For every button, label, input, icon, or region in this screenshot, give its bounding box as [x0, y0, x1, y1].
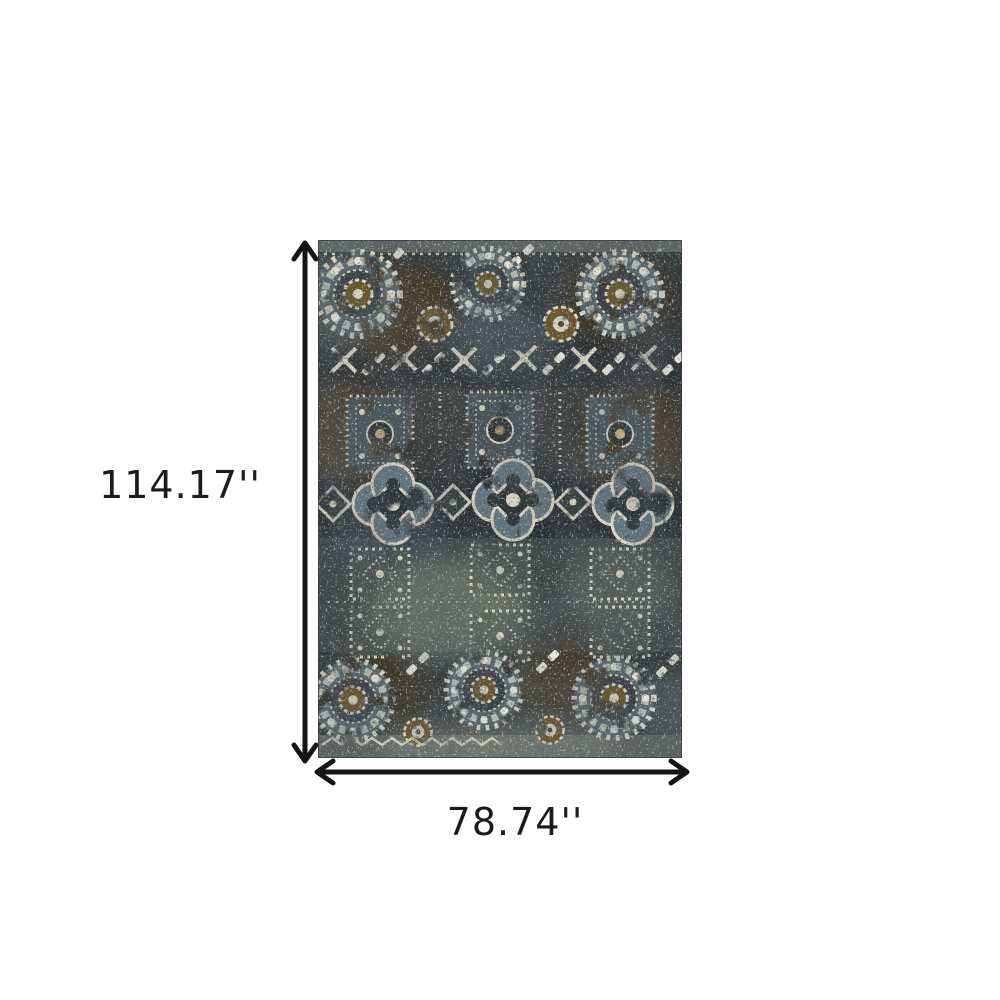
- height-dimension-label: 114.17'': [70, 463, 290, 507]
- product-dimension-figure: 114.17'' 78.74'': [0, 0, 1000, 1000]
- rug-image: [318, 240, 682, 758]
- width-dimension-label: 78.74'': [405, 800, 625, 844]
- height-dimension-arrow: [290, 238, 320, 766]
- rug-pattern-graphic: [318, 240, 682, 758]
- width-dimension-arrow: [312, 757, 692, 787]
